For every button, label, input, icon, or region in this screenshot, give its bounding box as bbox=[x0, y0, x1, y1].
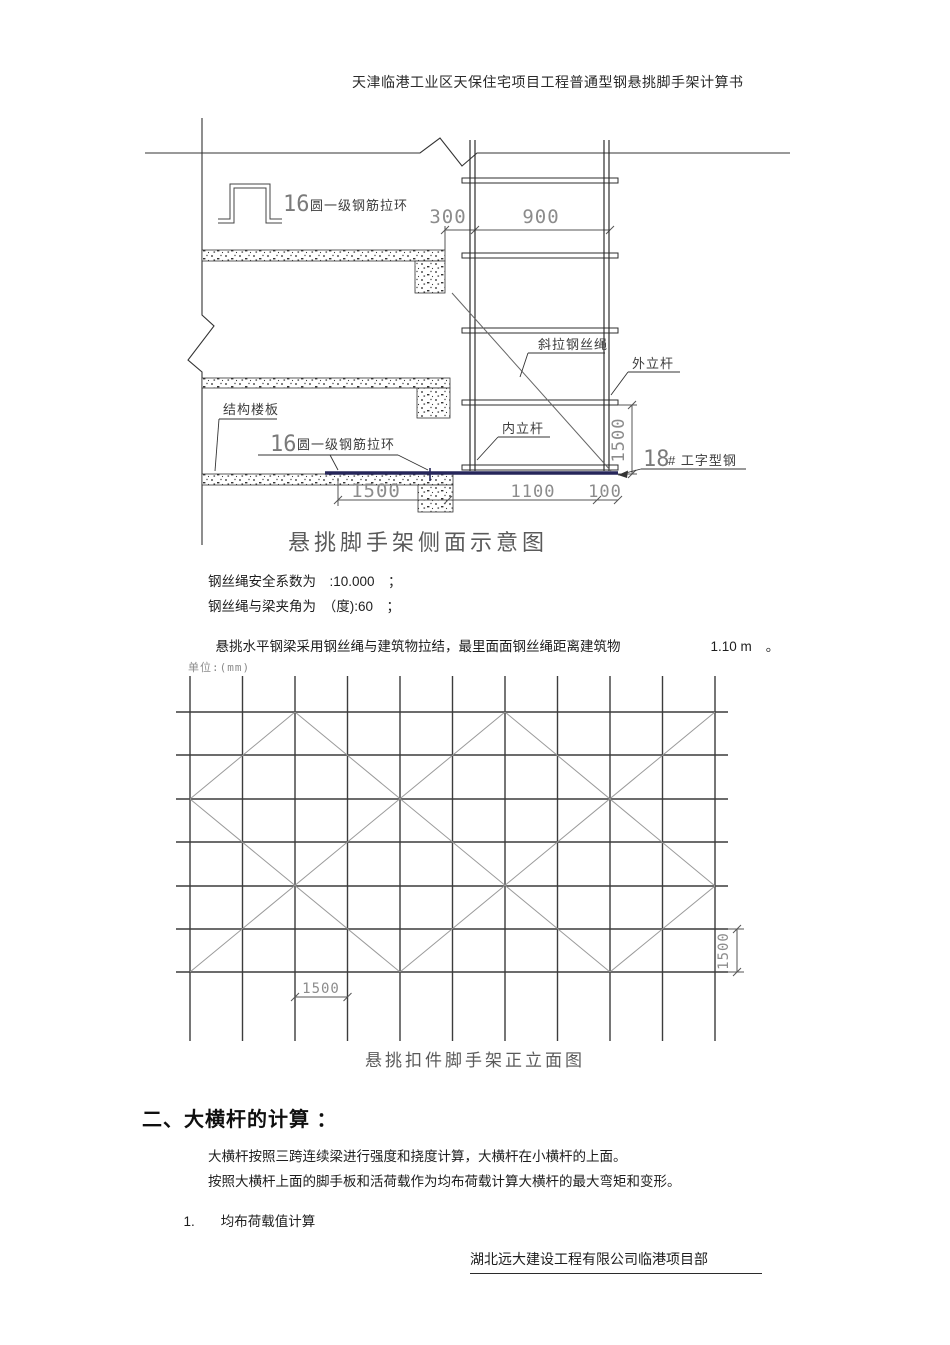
elevation-diagram: 单位:(mm) 1500 1500 bbox=[150, 650, 770, 1050]
wire-rope-line bbox=[452, 293, 611, 471]
dim-100-text: 100 bbox=[588, 482, 622, 502]
dim-900-text: 900 bbox=[522, 206, 559, 228]
side-view-caption: 悬挑脚手架侧面示意图 bbox=[288, 530, 548, 555]
elevation-caption: 悬挑扣件脚手架正立面图 bbox=[330, 1046, 620, 1071]
section-paragraph-2: 按照大横杆上面的脚手板和活荷载作为均布荷载计算大横杆的最大弯矩和变形。 bbox=[208, 1170, 681, 1190]
rebar-label-top: 圆一级钢筋拉环 bbox=[310, 198, 408, 213]
list-item-1: 1.均布荷载值计算 bbox=[176, 1195, 315, 1230]
dim-bottom: 1500 1100 100 bbox=[334, 478, 622, 506]
section-heading: 二、大横杆的计算 ： bbox=[142, 1103, 338, 1132]
list-item-1-text: 均布荷载值计算 bbox=[221, 1214, 316, 1229]
elevation-dim-right-text: 1500 bbox=[716, 932, 732, 970]
side-view-diagram: 16 圆一级钢筋拉环 300 900 bbox=[140, 110, 800, 560]
rebar-label-number-bottom: 16 bbox=[270, 432, 297, 457]
elevation-verticals bbox=[190, 676, 715, 1041]
dim-1100-text: 1100 bbox=[511, 482, 556, 502]
rebar-label-number-top: 16 bbox=[283, 192, 310, 217]
dim-1500-vertical-text: 1500 bbox=[609, 418, 629, 463]
elevation-dim-bottom-text: 1500 bbox=[302, 981, 340, 997]
dim-right-1500: 1500 bbox=[609, 401, 637, 478]
dim-300-900: 300 900 bbox=[429, 206, 614, 252]
document-title: 天津临港工业区天保住宅项目工程普通型钢悬挑脚手架计算书 bbox=[352, 72, 744, 92]
slab-label: 结构楼板 bbox=[223, 402, 279, 417]
note-safety-factor: 钢丝绳安全系数为 :10.000 ； bbox=[208, 570, 402, 590]
elevation-dim-bottom: 1500 bbox=[291, 981, 352, 1001]
rope-label: 斜拉钢丝绳 bbox=[538, 337, 608, 352]
outer-pole-label: 外立杆 bbox=[632, 356, 674, 371]
section-paragraph-1: 大横杆按照三跨连续梁进行强度和挠度计算，大横杆在小横杆的上面。 bbox=[208, 1145, 627, 1165]
elevation-dim-right: 1500 bbox=[716, 925, 744, 976]
inner-pole-label: 内立杆 bbox=[502, 421, 544, 436]
ibeam-label-number: 18 bbox=[643, 447, 670, 472]
rebar-label-bottom: 圆一级钢筋拉环 bbox=[297, 437, 395, 452]
callout-labels: 斜拉钢丝绳 外立杆 内立杆 结构楼板 16 圆一级钢筋拉环 18 # 工字型钢 bbox=[215, 337, 746, 478]
rebar-ring-symbol bbox=[218, 184, 282, 223]
dim-1500-bottom-text: 1500 bbox=[351, 480, 401, 502]
ibeam-label: # 工字型钢 bbox=[668, 453, 737, 468]
list-item-1-number: 1. bbox=[184, 1214, 195, 1229]
document-page: { "header": { "title": "天津临港工业区天保住宅项目工程普… bbox=[0, 0, 950, 1345]
footer-company: 湖北远大建设工程有限公司临港项目部 bbox=[470, 1249, 762, 1274]
dim-300-text: 300 bbox=[429, 206, 466, 228]
note-rope-angle: 钢丝绳与梁夹角为 （度):60 ； bbox=[208, 595, 400, 615]
unit-label: 单位:(mm) bbox=[188, 660, 250, 674]
